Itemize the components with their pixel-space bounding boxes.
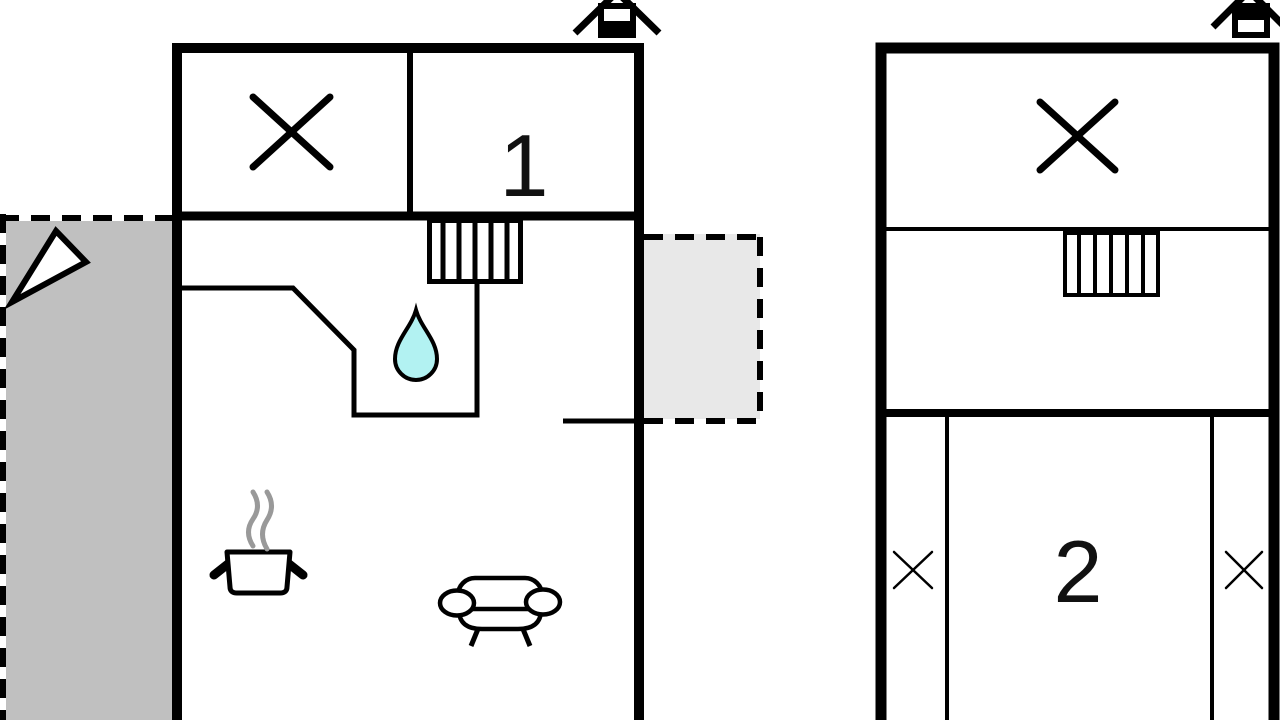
cooking-pot-icon [214,492,303,593]
crossed-room-icon [253,97,330,167]
terrace-dark-area [6,221,172,720]
staircase-icon [1065,231,1158,297]
upper-floor: 2 [881,0,1280,720]
sofa-leg [523,629,530,646]
staircase-icon [430,218,521,284]
pot-body [227,552,290,593]
chimney-box-fill [598,21,636,38]
sofa-armrest-left [440,591,474,616]
chimney-icon [575,0,659,38]
sofa-armrest-right [526,590,560,615]
ground-floor: 1 [0,0,763,720]
crossed-closet-left-icon [894,552,932,588]
crossed-room-icon [1040,102,1115,170]
sofa-icon [440,578,560,646]
room-1-number: 1 [500,116,549,215]
chimney-icon [1213,0,1280,35]
sofa-leg [471,629,478,646]
steam-icon [249,492,258,546]
crossed-closet-right-icon [1226,552,1262,588]
steam-icon [263,492,272,549]
water-drop-icon [395,310,437,380]
terrace-light-area [644,234,760,419]
chimney-box-fill [1232,3,1270,20]
floor-plan-drawing: 1 [0,0,1280,720]
room-2-number: 2 [1054,522,1103,621]
floor-plan-canvas: 1 [0,0,1280,720]
